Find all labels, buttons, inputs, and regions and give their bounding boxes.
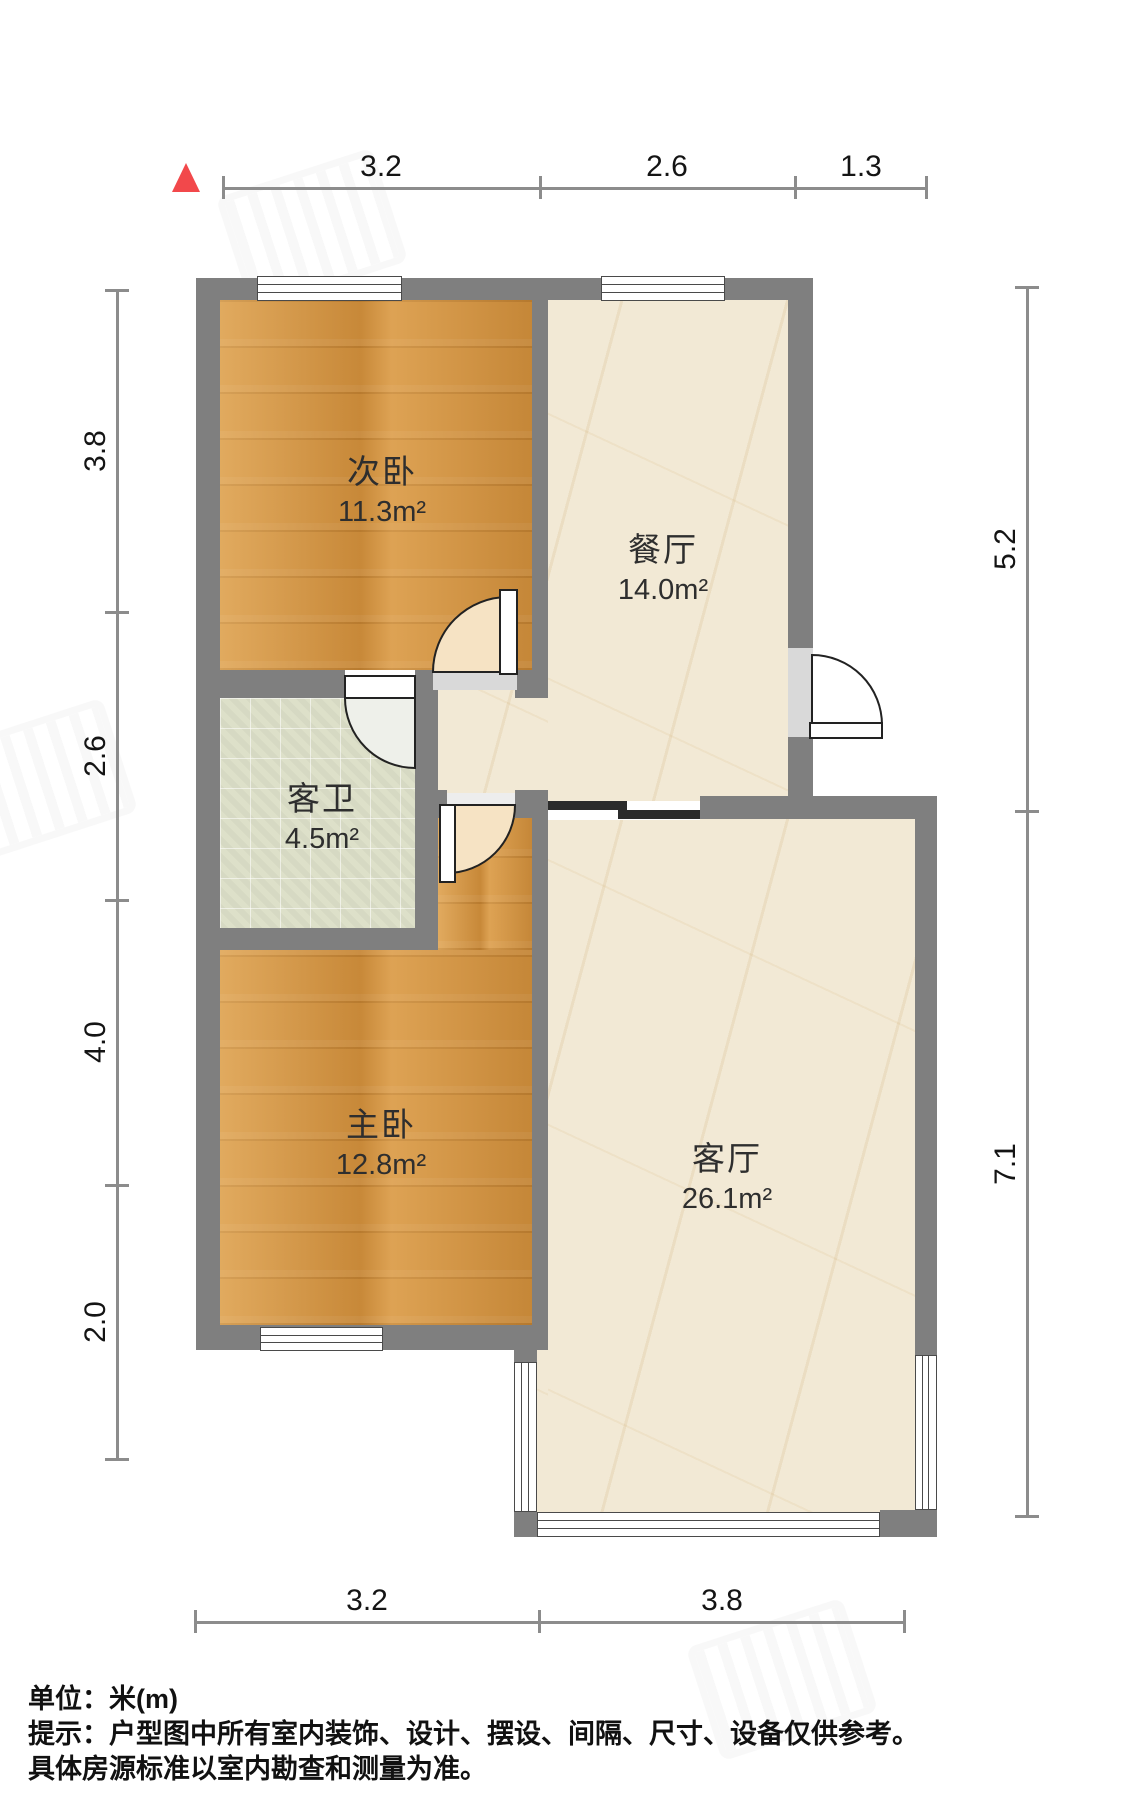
floor-plan-canvas: 次卧 11.3m² 餐厅 14.0m² 客卫 4.5m² 主卧 12.8m² 客… (0, 0, 1144, 1813)
wall-thin-dining-living (618, 810, 700, 819)
wall-bay-corner (880, 1510, 937, 1537)
wall-mid (515, 670, 532, 698)
room-area: 11.3m² (338, 496, 426, 529)
wall-bay-left-stub (514, 1350, 537, 1362)
dim-tick (105, 289, 129, 292)
dim-tick (194, 1610, 197, 1633)
floor-hallway (438, 690, 548, 793)
room-name: 餐厅 (618, 523, 708, 571)
window-bedroom2-top (257, 276, 402, 301)
room-name: 客厅 (682, 1132, 772, 1180)
room-label-dining: 餐厅 14.0m² (618, 523, 708, 607)
floor-master (438, 818, 532, 950)
wall-right-entry (788, 737, 813, 796)
room-name: 主卧 (336, 1098, 426, 1146)
dim-tick (1015, 810, 1039, 813)
dim-tick (903, 1610, 906, 1633)
dim-line-top (223, 187, 927, 190)
dim-tick (1015, 286, 1039, 289)
window-bay-bottom (537, 1512, 880, 1537)
dim-tick (1015, 1515, 1039, 1518)
wall-master-top (438, 790, 447, 818)
dim-tick (925, 176, 928, 199)
dim-tick (105, 1458, 129, 1461)
dim-label-bottom: 3.2 (346, 1584, 388, 1618)
note-line-1: 提示：户型图中所有室内装饰、设计、摆设、间隔、尺寸、设备仅供参考。 (28, 1717, 919, 1752)
room-label-bedroom2: 次卧 11.3m² (338, 445, 426, 529)
room-label-living: 客厅 26.1m² (682, 1132, 772, 1216)
dim-label-left: 2.6 (79, 735, 113, 777)
unit-label: 单位：米(m) (28, 1682, 919, 1717)
window-master-bottom (260, 1327, 383, 1351)
wall-bed2-dining (532, 300, 548, 698)
wall-master-top (515, 790, 548, 818)
master-door-opening (447, 793, 515, 818)
dim-tick (105, 1184, 129, 1187)
room-area: 14.0m² (618, 574, 708, 607)
window-bay-left (514, 1362, 537, 1512)
wall-left (196, 278, 220, 1350)
wall-right-upper (788, 300, 813, 648)
room-area: 4.5m² (285, 823, 359, 856)
wall-mid (196, 670, 345, 698)
dim-tick (794, 176, 797, 199)
window-dining-top (601, 276, 725, 301)
dim-label-right: 7.1 (989, 1143, 1023, 1185)
room-name: 客卫 (285, 772, 359, 820)
wall-living-top (700, 796, 937, 819)
dim-label-left: 3.8 (79, 430, 113, 472)
entry-door-arc (812, 655, 882, 725)
room-name: 次卧 (338, 445, 426, 493)
dim-tick (539, 176, 542, 199)
dim-label-left: 2.0 (79, 1301, 113, 1343)
dim-label-right: 5.2 (989, 528, 1023, 570)
dim-label-bottom: 3.8 (701, 1584, 743, 1618)
north-triangle-icon (172, 163, 200, 192)
dim-tick (538, 1610, 541, 1633)
dim-label-top: 1.3 (840, 150, 882, 184)
wall-thin-dining-living (548, 801, 627, 810)
room-area: 26.1m² (682, 1183, 772, 1216)
window-bay-right (915, 1355, 937, 1510)
dim-label-left: 4.0 (79, 1021, 113, 1063)
dim-tick (222, 176, 225, 199)
note-line-2: 具体房源标准以室内勘查和测量为准。 (28, 1752, 919, 1787)
bedroom2-door-opening (433, 672, 517, 690)
dim-label-top: 3.2 (360, 150, 402, 184)
dim-tick (105, 899, 129, 902)
entry-door-leaf (810, 723, 882, 738)
dim-line-bottom (195, 1621, 905, 1624)
wall-master-living (532, 818, 548, 1350)
dim-label-top: 2.6 (646, 150, 688, 184)
entry-door-opening (788, 648, 813, 737)
dim-line-right (1026, 287, 1029, 1517)
floor-living (537, 1350, 548, 1512)
room-label-master: 主卧 12.8m² (336, 1098, 426, 1182)
room-area: 12.8m² (336, 1149, 426, 1182)
dim-line-left (116, 290, 119, 1460)
wall-bath-right (415, 670, 438, 950)
wall-bath-bottom (196, 928, 438, 950)
room-label-bathroom: 客卫 4.5m² (285, 772, 359, 856)
footer-notes: 单位：米(m) 提示：户型图中所有室内装饰、设计、摆设、间隔、尺寸、设备仅供参考… (28, 1682, 919, 1787)
wall-bay-corner (514, 1512, 537, 1537)
bathroom-door-leaf (345, 676, 415, 698)
wall-living-right (915, 819, 937, 1355)
dim-tick (105, 611, 129, 614)
